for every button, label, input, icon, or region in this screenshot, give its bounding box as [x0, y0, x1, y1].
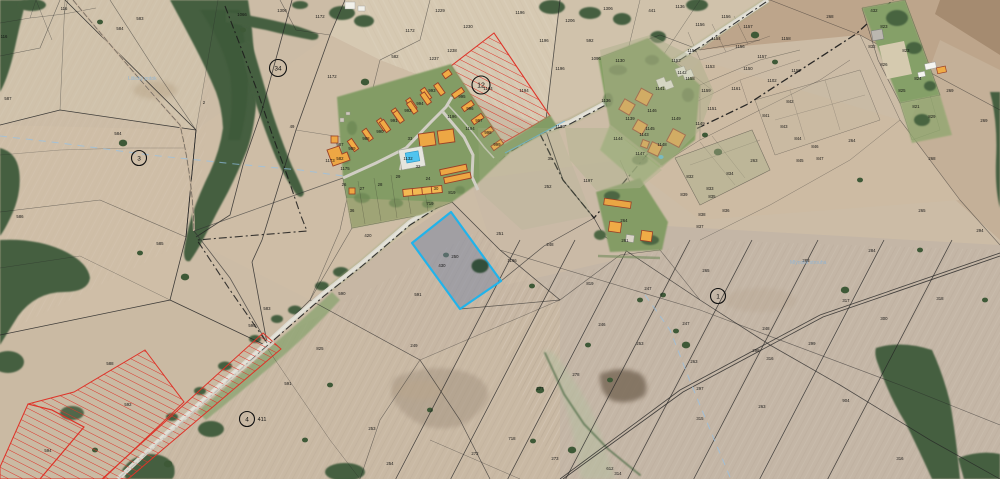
svg-text:1156: 1156: [735, 44, 745, 49]
svg-text:829: 829: [928, 114, 936, 119]
svg-text:1194: 1194: [519, 88, 529, 93]
svg-text:30: 30: [434, 186, 439, 191]
svg-text:821: 821: [912, 104, 920, 109]
svg-text:587: 587: [4, 96, 12, 101]
svg-text:261: 261: [621, 238, 629, 243]
svg-text:590: 590: [338, 291, 346, 296]
svg-text:842: 842: [786, 99, 794, 104]
svg-text:1196: 1196: [515, 10, 525, 15]
svg-text:1066: 1066: [237, 12, 247, 17]
svg-text:987: 987: [336, 142, 344, 147]
svg-text:314: 314: [614, 471, 622, 476]
svg-text:1194: 1194: [465, 126, 475, 131]
svg-text:592: 592: [586, 38, 594, 43]
svg-text:1175: 1175: [340, 166, 350, 171]
svg-text:997: 997: [475, 118, 483, 123]
svg-text:Mlýnská strouha: Mlýnská strouha: [790, 260, 827, 266]
svg-text:1159: 1159: [701, 88, 711, 93]
svg-text:995: 995: [458, 94, 466, 99]
svg-text:28: 28: [378, 182, 383, 187]
svg-text:1151: 1151: [707, 106, 717, 111]
svg-text:991: 991: [390, 118, 398, 123]
svg-text:845: 845: [796, 158, 804, 163]
svg-text:998: 998: [484, 130, 492, 135]
svg-text:1143: 1143: [639, 132, 649, 137]
svg-text:1306: 1306: [277, 8, 287, 13]
svg-text:1146: 1146: [647, 108, 657, 113]
svg-text:247: 247: [644, 286, 652, 291]
svg-text:248: 248: [762, 326, 770, 331]
svg-text:1130: 1130: [615, 58, 625, 63]
svg-text:265: 265: [702, 268, 710, 273]
svg-text:Lišický potok: Lišický potok: [128, 76, 157, 82]
svg-text:993: 993: [428, 88, 436, 93]
svg-text:1196: 1196: [539, 38, 549, 43]
svg-text:269: 269: [946, 88, 954, 93]
svg-text:718: 718: [508, 436, 516, 441]
svg-text:1148: 1148: [657, 142, 667, 147]
svg-text:1196: 1196: [447, 114, 457, 119]
svg-text:411: 411: [258, 417, 267, 423]
svg-text:843: 843: [780, 124, 788, 129]
svg-text:4: 4: [245, 416, 249, 423]
svg-text:1142: 1142: [677, 70, 687, 75]
svg-text:1147: 1147: [635, 151, 645, 156]
svg-text:1206: 1206: [565, 18, 575, 23]
svg-text:315: 315: [696, 416, 704, 421]
svg-text:253: 253: [636, 341, 644, 346]
svg-text:990: 990: [376, 129, 384, 134]
svg-text:825: 825: [898, 88, 906, 93]
svg-text:1136: 1136: [675, 4, 685, 9]
svg-text:116: 116: [1, 34, 8, 39]
svg-text:1136: 1136: [601, 98, 611, 103]
svg-text:582: 582: [391, 54, 399, 59]
svg-text:1158: 1158: [685, 76, 695, 81]
svg-text:591: 591: [414, 292, 422, 297]
svg-text:284: 284: [868, 248, 876, 253]
svg-text:1150: 1150: [743, 66, 753, 71]
svg-text:1149: 1149: [671, 116, 681, 121]
svg-text:839: 839: [680, 192, 688, 197]
svg-text:251: 251: [496, 231, 504, 236]
svg-text:247: 247: [682, 321, 690, 326]
svg-text:590: 590: [248, 323, 256, 328]
svg-text:989: 989: [348, 146, 356, 151]
svg-text:585: 585: [156, 241, 164, 246]
svg-text:588: 588: [106, 361, 114, 366]
svg-text:582: 582: [336, 156, 344, 161]
svg-text:719: 719: [426, 201, 434, 206]
svg-text:836: 836: [722, 208, 730, 213]
svg-text:29: 29: [396, 174, 401, 179]
svg-text:3: 3: [137, 155, 141, 162]
svg-text:35: 35: [548, 156, 553, 161]
svg-text:1230: 1230: [463, 24, 473, 29]
svg-text:1172: 1172: [405, 28, 415, 33]
svg-text:835: 835: [708, 194, 716, 199]
svg-text:1156: 1156: [721, 14, 731, 19]
svg-text:277: 277: [536, 386, 544, 391]
svg-text:1141: 1141: [655, 86, 665, 91]
svg-text:1149: 1149: [695, 121, 705, 126]
svg-text:1: 1: [716, 293, 720, 300]
svg-text:272: 272: [471, 451, 479, 456]
svg-text:316: 316: [766, 356, 774, 361]
svg-text:265: 265: [918, 208, 926, 213]
svg-text:1102: 1102: [767, 78, 777, 83]
svg-text:1229: 1229: [435, 8, 445, 13]
svg-text:592: 592: [124, 402, 132, 407]
svg-text:822: 822: [902, 48, 910, 53]
svg-text:34: 34: [274, 65, 282, 72]
svg-text:847: 847: [816, 156, 824, 161]
svg-text:996: 996: [466, 106, 474, 111]
svg-text:824: 824: [914, 76, 922, 81]
svg-text:33: 33: [408, 136, 413, 141]
svg-text:1132: 1132: [403, 156, 413, 161]
svg-text:584: 584: [116, 26, 124, 31]
svg-text:26: 26: [342, 182, 347, 187]
svg-text:268: 268: [826, 14, 834, 19]
svg-text:263: 263: [690, 359, 698, 364]
svg-text:300: 300: [880, 316, 888, 321]
svg-text:246: 246: [598, 322, 606, 327]
svg-text:298: 298: [752, 348, 760, 353]
svg-text:992: 992: [404, 108, 412, 113]
svg-text:278: 278: [572, 372, 580, 377]
svg-text:826: 826: [880, 62, 888, 67]
svg-text:264: 264: [848, 138, 856, 143]
svg-text:430: 430: [438, 263, 446, 268]
svg-text:1136: 1136: [555, 124, 565, 129]
svg-text:36: 36: [350, 208, 355, 213]
svg-text:819: 819: [586, 281, 594, 286]
svg-text:27: 27: [360, 186, 365, 191]
svg-text:1306: 1306: [603, 6, 613, 11]
svg-text:823: 823: [880, 24, 888, 29]
svg-text:248: 248: [546, 242, 554, 247]
svg-text:1158: 1158: [781, 36, 791, 41]
svg-text:1238: 1238: [447, 48, 457, 53]
svg-text:832: 832: [868, 44, 876, 49]
svg-text:1144: 1144: [613, 136, 623, 141]
svg-text:252: 252: [544, 184, 552, 189]
svg-text:268: 268: [928, 156, 936, 161]
svg-text:1154: 1154: [711, 36, 721, 41]
svg-text:1096: 1096: [591, 56, 601, 61]
svg-text:841: 841: [762, 113, 770, 118]
svg-text:318: 318: [936, 296, 944, 301]
svg-text:263: 263: [750, 158, 758, 163]
svg-text:1157: 1157: [743, 24, 753, 29]
svg-text:825: 825: [316, 346, 324, 351]
svg-text:299: 299: [808, 341, 816, 346]
svg-text:12: 12: [477, 83, 485, 90]
svg-text:832: 832: [686, 174, 694, 179]
svg-text:317: 317: [842, 298, 850, 303]
svg-text:988: 988: [362, 136, 370, 141]
svg-text:254: 254: [386, 461, 394, 466]
svg-text:441: 441: [648, 8, 656, 13]
svg-text:269: 269: [980, 118, 988, 123]
svg-text:1145: 1145: [645, 126, 655, 131]
svg-text:1172: 1172: [315, 14, 325, 19]
svg-text:49: 49: [290, 124, 295, 129]
svg-text:1139: 1139: [625, 116, 635, 121]
svg-text:316: 316: [896, 456, 904, 461]
svg-text:1156: 1156: [695, 22, 705, 27]
svg-text:904: 904: [842, 398, 850, 403]
svg-text:846: 846: [811, 144, 819, 149]
svg-text:819: 819: [448, 190, 456, 195]
svg-text:994: 994: [416, 101, 424, 106]
svg-text:1237: 1237: [429, 56, 439, 61]
svg-text:833: 833: [706, 186, 714, 191]
svg-text:1196: 1196: [555, 66, 565, 71]
svg-text:24: 24: [426, 176, 431, 181]
svg-text:844: 844: [794, 136, 802, 141]
svg-text:1153: 1153: [705, 64, 715, 69]
svg-text:1157: 1157: [757, 54, 767, 59]
svg-text:253: 253: [368, 426, 376, 431]
svg-text:297: 297: [696, 386, 704, 391]
svg-text:263: 263: [758, 404, 766, 409]
svg-text:116: 116: [61, 6, 68, 11]
svg-text:834: 834: [726, 171, 734, 176]
svg-text:586: 586: [16, 214, 24, 219]
svg-text:1196: 1196: [507, 258, 517, 263]
svg-text:1172: 1172: [327, 74, 337, 79]
svg-text:250: 250: [451, 254, 459, 259]
svg-text:838: 838: [698, 212, 706, 217]
svg-text:1161: 1161: [731, 86, 741, 91]
svg-text:1197: 1197: [583, 178, 593, 183]
svg-text:420: 420: [364, 233, 372, 238]
svg-text:591: 591: [284, 381, 292, 386]
svg-text:612: 612: [606, 466, 614, 471]
svg-text:1152: 1152: [671, 58, 681, 63]
svg-text:837: 837: [696, 224, 704, 229]
svg-text:1173: 1173: [325, 158, 335, 163]
svg-text:584: 584: [114, 131, 122, 136]
svg-text:249: 249: [410, 343, 418, 348]
svg-text:294: 294: [976, 228, 984, 233]
svg-text:1154: 1154: [687, 48, 697, 53]
svg-text:273: 273: [551, 456, 559, 461]
svg-text:32: 32: [416, 164, 421, 169]
svg-text:583: 583: [263, 306, 271, 311]
svg-text:1159: 1159: [791, 68, 801, 73]
svg-text:264: 264: [620, 218, 628, 223]
svg-text:594: 594: [44, 448, 52, 453]
svg-text:583: 583: [136, 16, 144, 21]
svg-text:432: 432: [870, 8, 878, 13]
svg-text:999: 999: [493, 142, 501, 147]
